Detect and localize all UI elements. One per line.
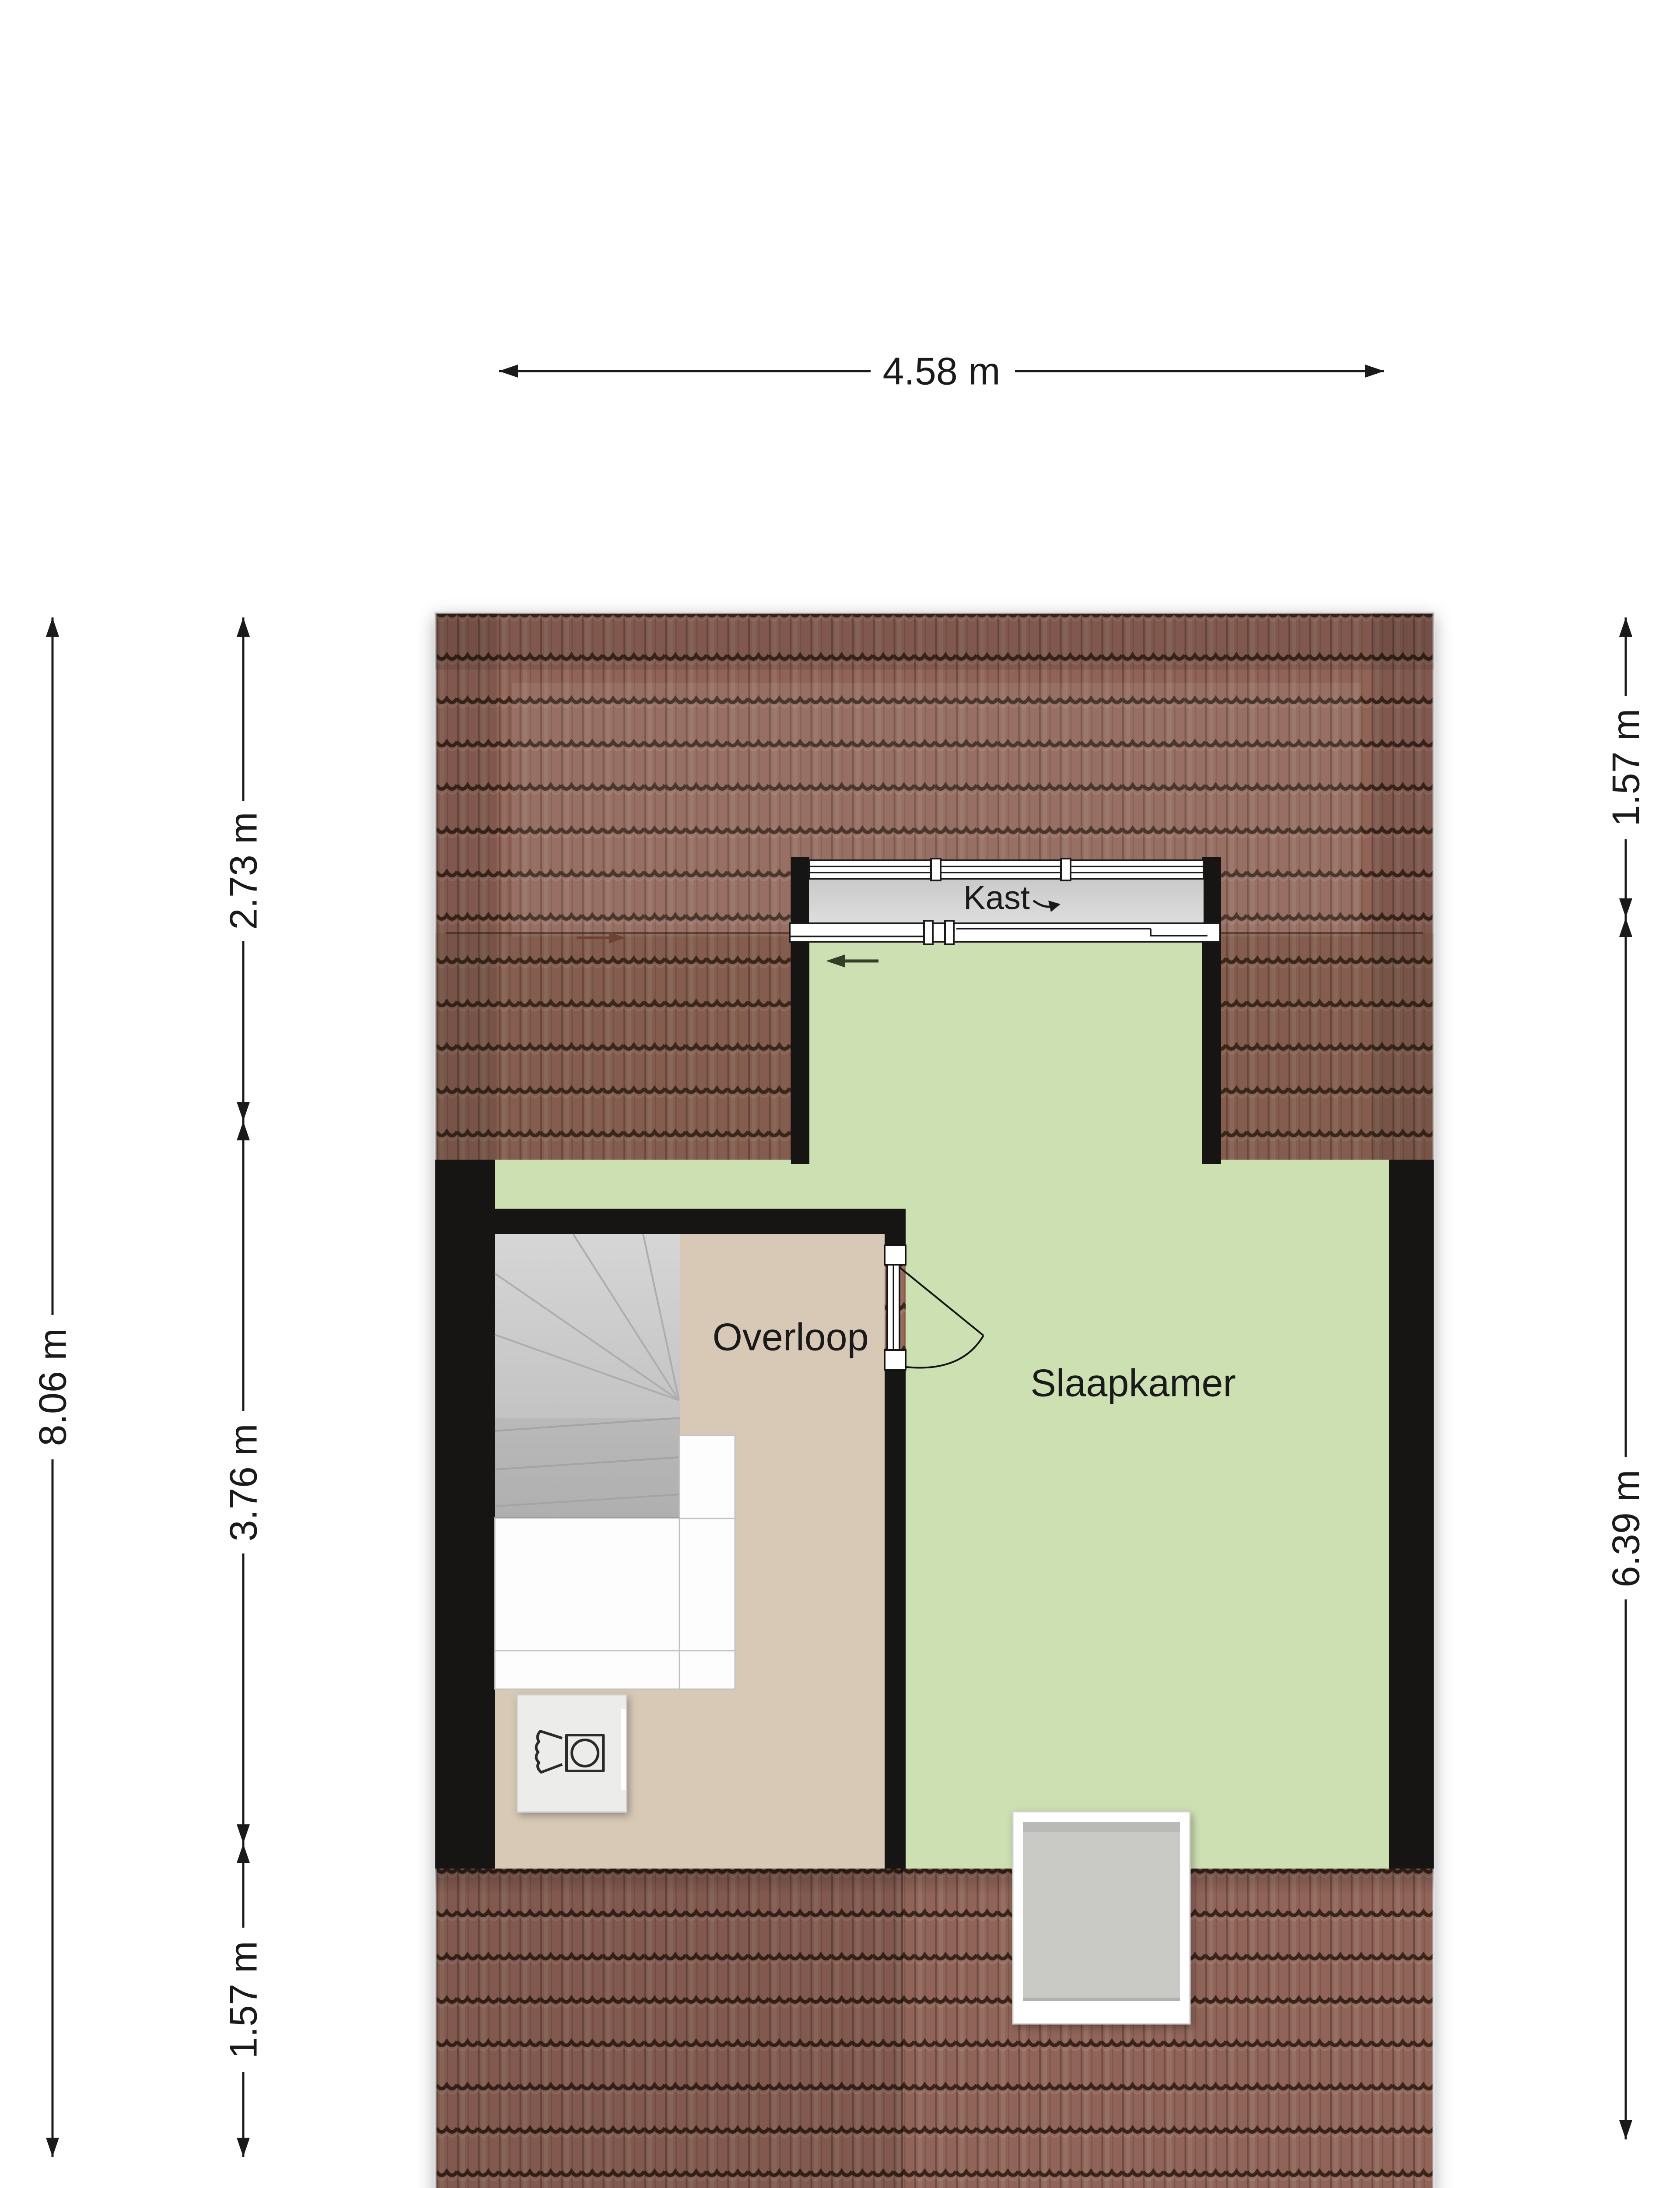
dimension-left-lower: 1.57 m <box>222 1844 265 2157</box>
closet-back-rail <box>809 859 1204 880</box>
staircase-lower-shade <box>495 1418 680 1518</box>
dimension-left-lower-label: 1.57 m <box>222 1941 265 2058</box>
dimension-right-upper-label: 1.57 m <box>1604 708 1648 826</box>
dimension-right-upper: 1.57 m <box>1604 617 1648 918</box>
dimension-left-upper-label: 2.73 m <box>222 812 265 929</box>
stairwell-opening <box>495 1518 735 1689</box>
wall-center-lower <box>885 1370 906 1869</box>
dimension-left-upper: 2.73 m <box>222 617 265 1121</box>
wall-hallway-top <box>495 1209 906 1234</box>
wall-closet-right <box>1202 857 1221 1164</box>
staircase <box>495 1234 680 1518</box>
dimension-top-width: 4.58 m <box>499 350 1384 393</box>
bedroom-label: Slaapkamer <box>1030 1361 1236 1405</box>
wall-center-upper-stub <box>885 1234 906 1245</box>
door-jamb-bottom <box>885 1350 906 1370</box>
skylight-bottom-bar <box>1023 1998 1180 2001</box>
dimension-left-middle: 3.76 m <box>222 1121 265 1844</box>
skylight-glass <box>1023 1822 1180 2001</box>
dimension-left-total-label: 8.06 m <box>31 1328 74 1446</box>
roof-right-lower-strip <box>1221 933 1434 1162</box>
roof-top-edge-top <box>435 613 1434 670</box>
floorplan-page: Kast <box>0 0 1680 2188</box>
stair-railing-upper <box>679 1435 735 1518</box>
washing-machine <box>517 1695 626 1812</box>
dimension-right-lower-label: 6.39 m <box>1604 1469 1648 1587</box>
wall-left-outer <box>435 1160 495 1869</box>
skylight-window <box>1013 1812 1190 2024</box>
dimension-left-total: 8.06 m <box>31 617 74 2157</box>
closet-sliding-doors <box>790 921 1220 944</box>
wall-right-outer <box>1389 1160 1434 1869</box>
roof-bottom-top-shadow <box>435 1869 1434 1895</box>
dimension-right-lower: 6.39 m <box>1604 918 1648 2139</box>
bedroom-floor-closet-corridor <box>809 942 1202 1166</box>
washing-machine-hinge <box>621 1709 626 1790</box>
bedroom-floor-main <box>906 1160 1389 1869</box>
closet-label: Kast <box>963 880 1030 917</box>
closet: Kast <box>790 859 1220 944</box>
floorplan-canvas: Kast <box>0 0 1680 2188</box>
roof-left-lower-strip <box>435 933 791 1162</box>
hallway-label: Overloop <box>712 1315 868 1359</box>
dimension-left-middle-label: 3.76 m <box>222 1424 265 1541</box>
wall-closet-left <box>791 857 809 1164</box>
door-jamb-top <box>885 1245 906 1265</box>
skylight-top-cap <box>1023 1822 1180 1832</box>
roof-bottom-left-tone <box>435 1869 902 2188</box>
dimension-top-width-label: 4.58 m <box>882 350 1000 393</box>
